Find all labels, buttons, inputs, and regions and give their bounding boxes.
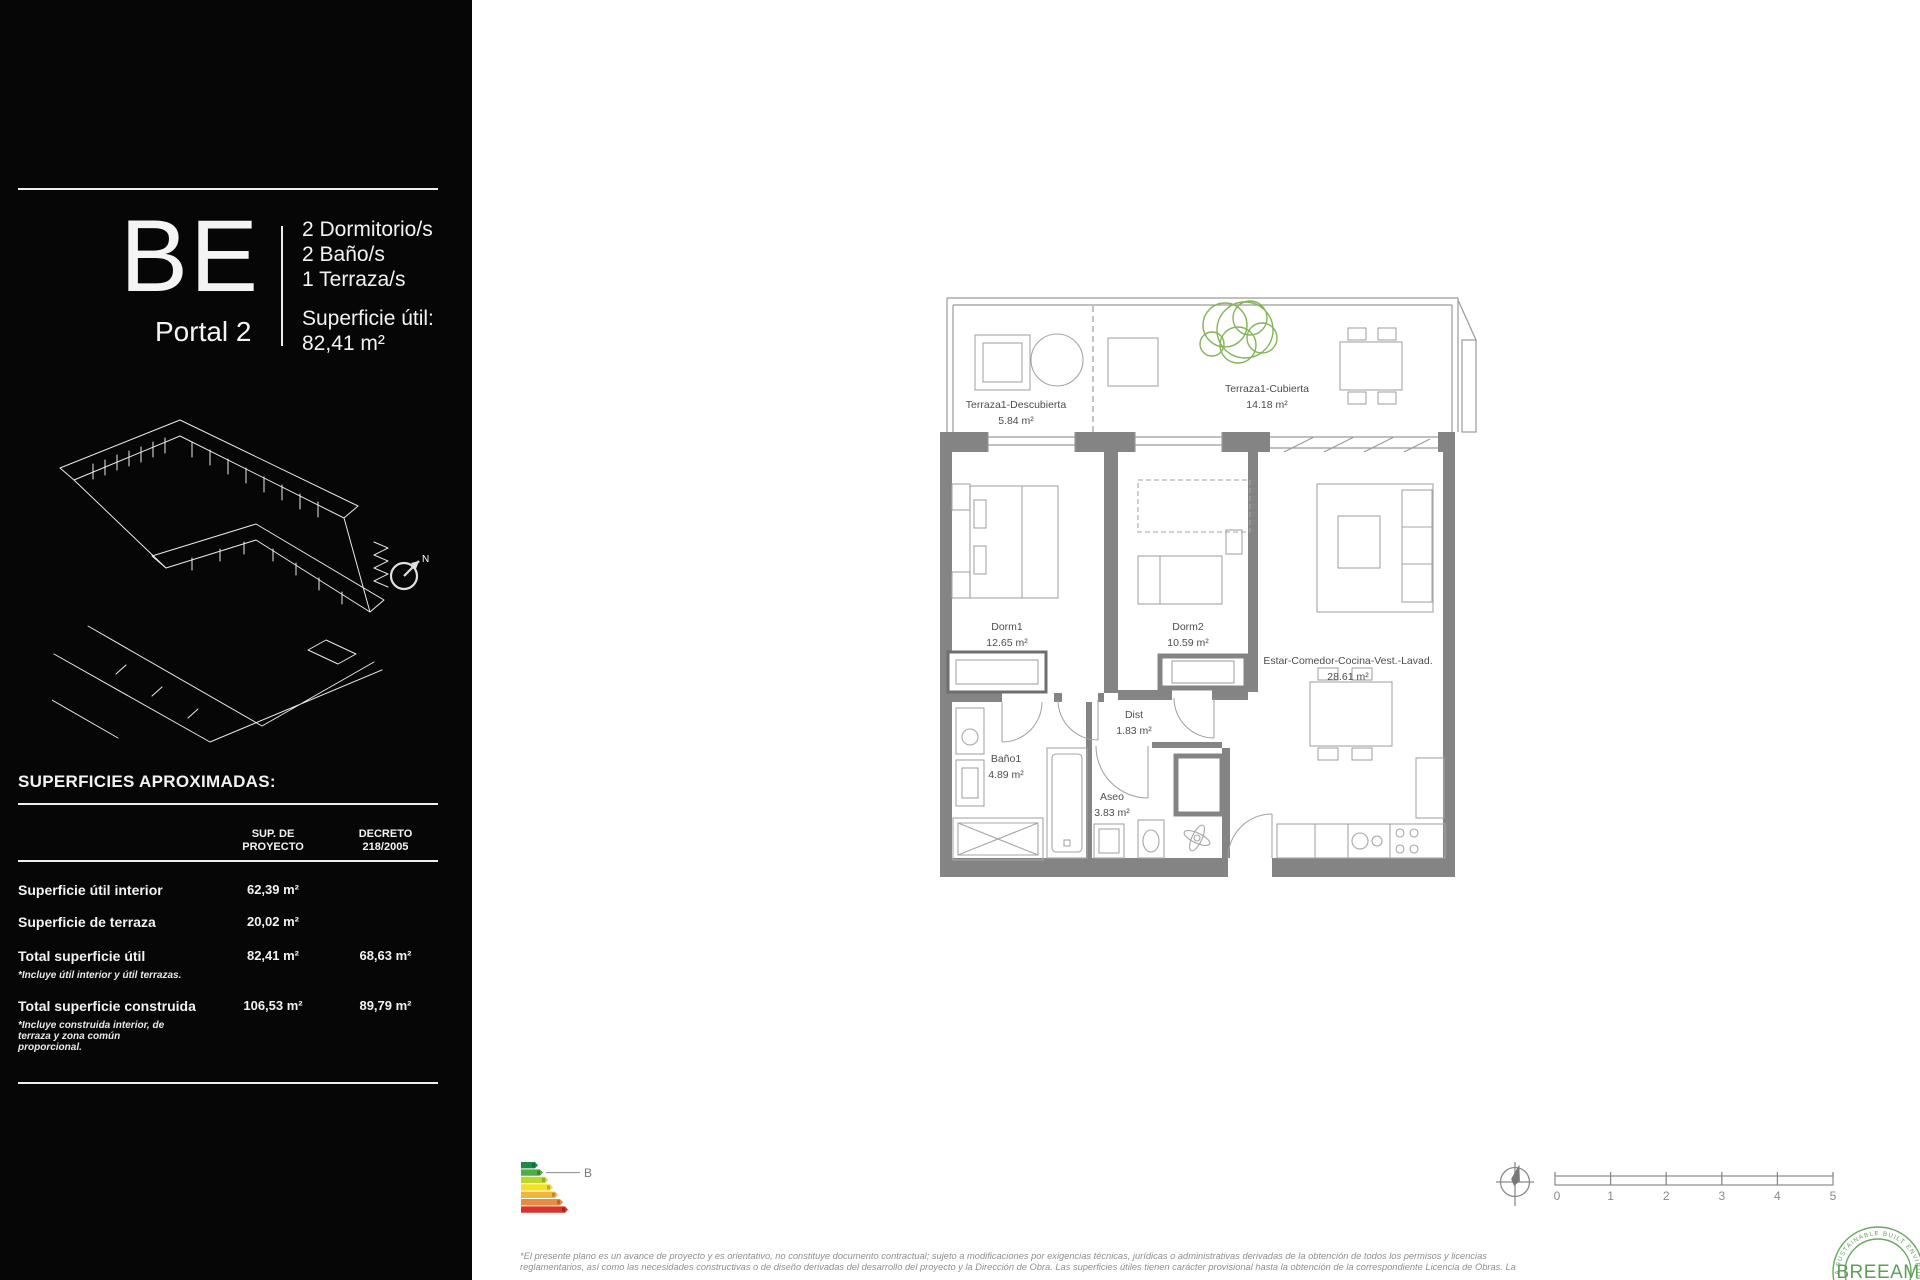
dorm2-door	[1174, 698, 1214, 738]
tall-unit	[1416, 758, 1444, 818]
entrance-door	[1228, 814, 1272, 858]
scale-label: 0	[1554, 1189, 1561, 1203]
breeam-logo-text: BREEAM	[1836, 1262, 1919, 1280]
row-proyecto-value: 106,53 m²	[218, 998, 328, 1014]
extractor-fan-icon	[1182, 823, 1212, 853]
surfaces-table-title: SUPERFICIES APROXIMADAS:	[18, 772, 276, 792]
room-label: Dorm2	[1172, 621, 1204, 633]
room-label: Terraza1-Cubierta	[1225, 383, 1309, 395]
disclaimer-line-2: reglamentarios, así como las necesidades…	[520, 1262, 1595, 1273]
row-note: *Incluye construida interior, de terraza…	[18, 1020, 168, 1053]
row-label: Superficie de terraza	[18, 914, 218, 930]
col-header-proyecto: SUP. DEPROYECTO	[218, 828, 328, 854]
row-label: Superficie útil interior	[18, 882, 218, 898]
useful-surface: Superficie útil: 82,41 m²	[302, 306, 434, 356]
row-decreto-value: 89,79 m²	[328, 998, 443, 1014]
rug	[1317, 484, 1433, 612]
energy-rating-letter: B	[584, 1166, 592, 1180]
breeam-stamp: A SUSTAINABLE BUILT ENVIRONMENT BREEAM	[1822, 1218, 1920, 1280]
room-area: 28.61 m²	[1327, 671, 1369, 683]
row-proyecto-value: 82,41 m²	[218, 948, 328, 964]
header-divider	[281, 226, 283, 346]
useful-surface-value: 82,41 m²	[302, 331, 434, 356]
scale-label: 1	[1607, 1189, 1614, 1203]
living-room-furniture	[1310, 484, 1433, 760]
kitchen	[1277, 758, 1445, 858]
room-label: Baño1	[991, 753, 1022, 765]
scale-bar: 0 1 2 3 4 5	[1548, 1162, 1840, 1207]
table-rule	[18, 860, 438, 862]
sidebar-top-rule	[18, 188, 438, 190]
room-label: Dist	[1125, 709, 1143, 721]
windows	[988, 432, 1438, 452]
room-area: 10.59 m²	[1167, 637, 1209, 649]
toilet	[956, 708, 984, 754]
scale-label: 3	[1718, 1189, 1725, 1203]
table-rule	[18, 803, 438, 805]
room-label: Aseo	[1100, 791, 1124, 803]
table-row: Superficie útil interior 62,39 m²	[18, 882, 443, 898]
disclaimer-text: *El presente plano es un avance de proye…	[520, 1251, 1595, 1273]
room-area: 1.83 m²	[1116, 725, 1152, 737]
room-area: 12.65 m²	[986, 637, 1028, 649]
row-proyecto-value: 20,02 m²	[218, 914, 328, 930]
row-decreto-value: 68,63 m²	[328, 948, 443, 964]
row-note: *Incluye útil interior y útil terrazas.	[18, 970, 181, 981]
washbasin	[956, 760, 984, 806]
energy-bars	[521, 1162, 568, 1213]
site-roads	[52, 626, 382, 742]
bath1-door	[1002, 702, 1042, 742]
compass-n-label: N	[422, 554, 429, 565]
feature-bathrooms: 2 Baño/s	[302, 242, 433, 267]
table-row: Total superficie construida 106,53 m² 89…	[18, 998, 443, 1014]
sofa	[1402, 490, 1432, 602]
hob	[1396, 829, 1404, 837]
room-label: Terraza1-Descubierta	[966, 399, 1067, 411]
col-header-decreto: DECRETO218/2005	[328, 828, 443, 854]
duct-shaft	[1176, 756, 1222, 814]
room-area: 3.83 m²	[1094, 807, 1130, 819]
room-area: 14.18 m²	[1246, 399, 1288, 411]
unit-code: BE	[120, 206, 260, 306]
table-rule	[18, 1082, 438, 1084]
floor-plan: Terraza1-Descubierta 5.84 m² Terraza1-Cu…	[930, 288, 1505, 880]
bath1-fixtures	[953, 708, 1087, 860]
sink	[1352, 833, 1368, 849]
shower	[1047, 748, 1087, 858]
dorm2-furniture	[1138, 480, 1250, 688]
dorm1-bed	[970, 486, 1058, 598]
feature-bedrooms: 2 Dormitorio/s	[302, 217, 433, 242]
room-area: 5.84 m²	[998, 415, 1034, 427]
terrace-boundary	[947, 298, 1476, 432]
sidebar-north-compass-icon: N	[380, 548, 432, 600]
useful-surface-label: Superficie útil:	[302, 306, 434, 331]
sidebar: BE Portal 2 2 Dormitorio/s 2 Baño/s 1 Te…	[0, 0, 472, 1280]
table-row: Superficie de terraza 20,02 m²	[18, 914, 443, 930]
portal-label: Portal 2	[155, 316, 252, 348]
dining-table	[1310, 682, 1392, 746]
terrace-dining-table	[1340, 342, 1402, 390]
row-label: Total superficie construida	[18, 998, 218, 1014]
dorm1-wardrobe	[948, 652, 1046, 692]
row-proyecto-value: 62,39 m²	[218, 882, 328, 898]
row-label: Total superficie útil	[18, 948, 218, 964]
unit-features: 2 Dormitorio/s 2 Baño/s 1 Terraza/s	[302, 217, 433, 292]
dorm1-furniture	[948, 484, 1058, 692]
room-label: Dorm1	[991, 621, 1023, 633]
energy-rating-chart: B	[518, 1160, 618, 1230]
terrace-plant	[1200, 301, 1277, 363]
room-area: 4.89 m²	[988, 769, 1024, 781]
building-lower-block	[152, 524, 388, 612]
feature-terraces: 1 Terraza/s	[302, 267, 433, 292]
room-label: Estar-Comedor-Cocina-Vest.-Lavad.	[1263, 655, 1432, 667]
terrace-furniture	[975, 328, 1402, 404]
plan-compass-icon	[1492, 1158, 1538, 1210]
scale-label: 4	[1774, 1189, 1781, 1203]
kitchen-counter	[1277, 824, 1445, 858]
table-row: Total superficie útil 82,41 m² 68,63 m²	[18, 948, 443, 964]
table-header-row: SUP. DEPROYECTO DECRETO218/2005	[18, 828, 443, 854]
dorm2-bed	[1138, 556, 1222, 604]
disclaimer-line-1: *El presente plano es un avance de proye…	[520, 1251, 1595, 1262]
scale-label: 5	[1830, 1189, 1837, 1203]
scale-label: 2	[1663, 1189, 1670, 1203]
